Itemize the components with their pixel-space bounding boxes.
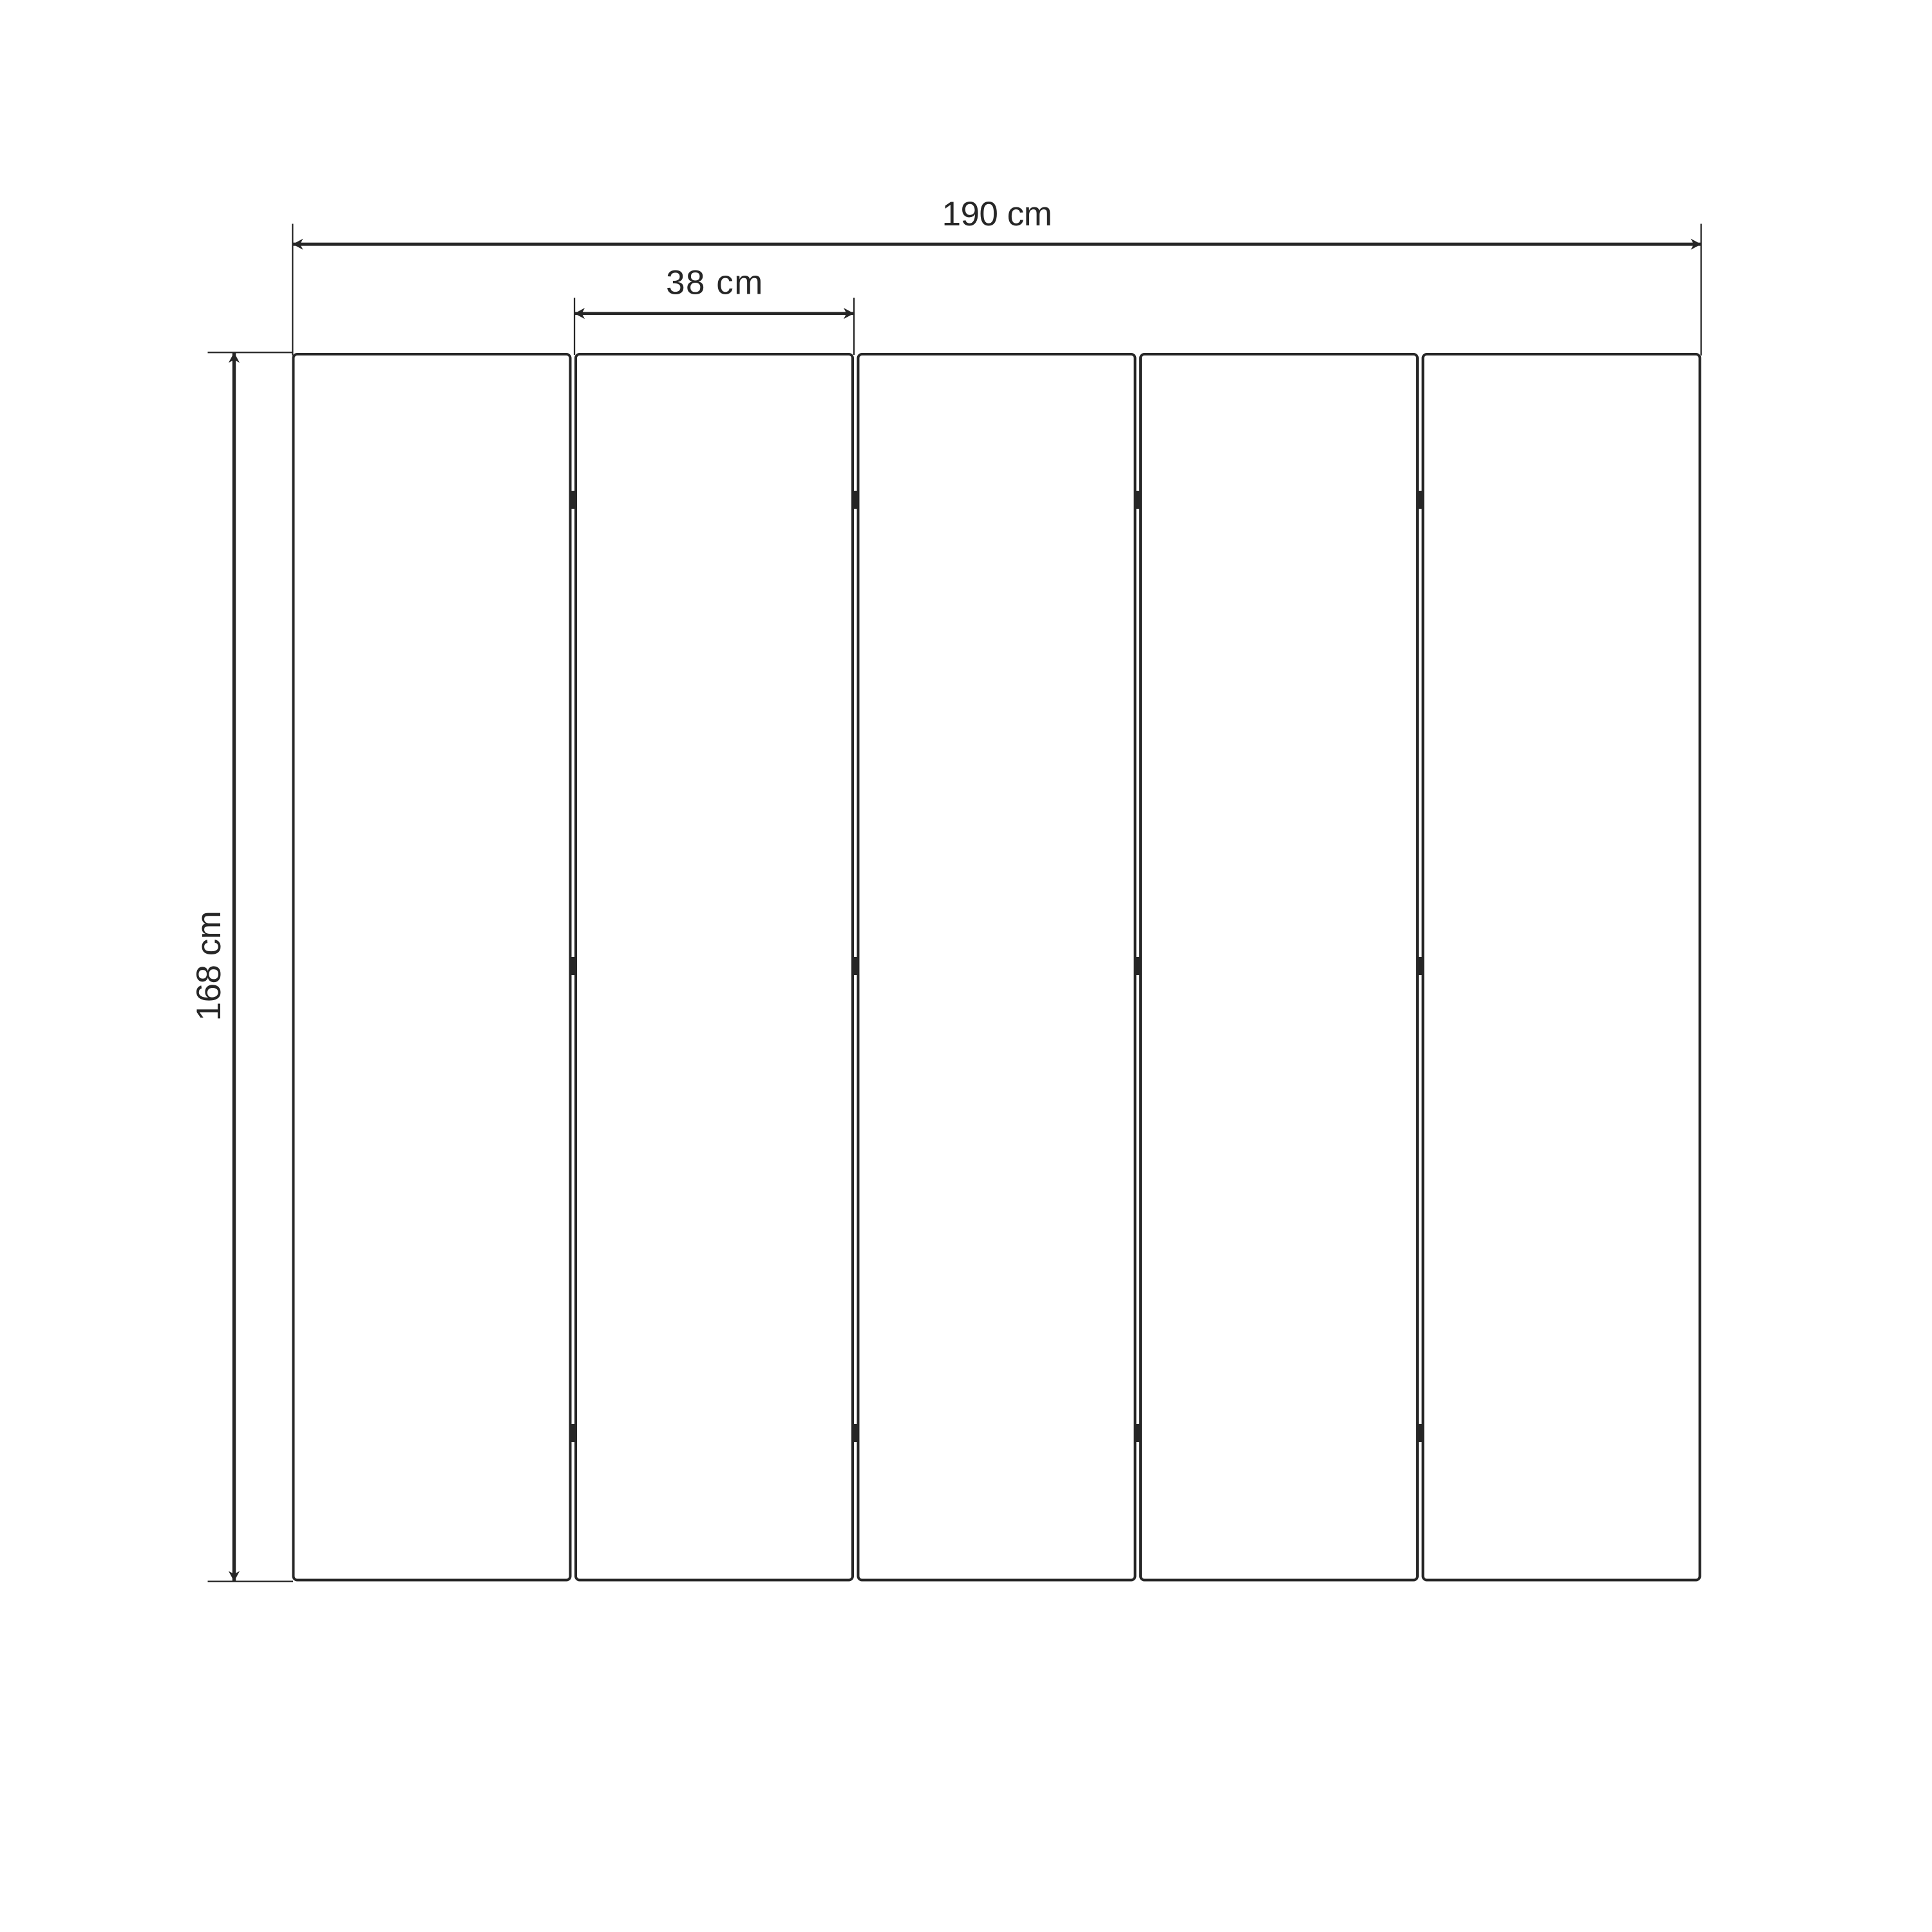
svg-text:190 cm: 190 cm: [942, 195, 1052, 233]
svg-text:168 cm: 168 cm: [190, 911, 228, 1021]
svg-text:38 cm: 38 cm: [666, 264, 764, 302]
